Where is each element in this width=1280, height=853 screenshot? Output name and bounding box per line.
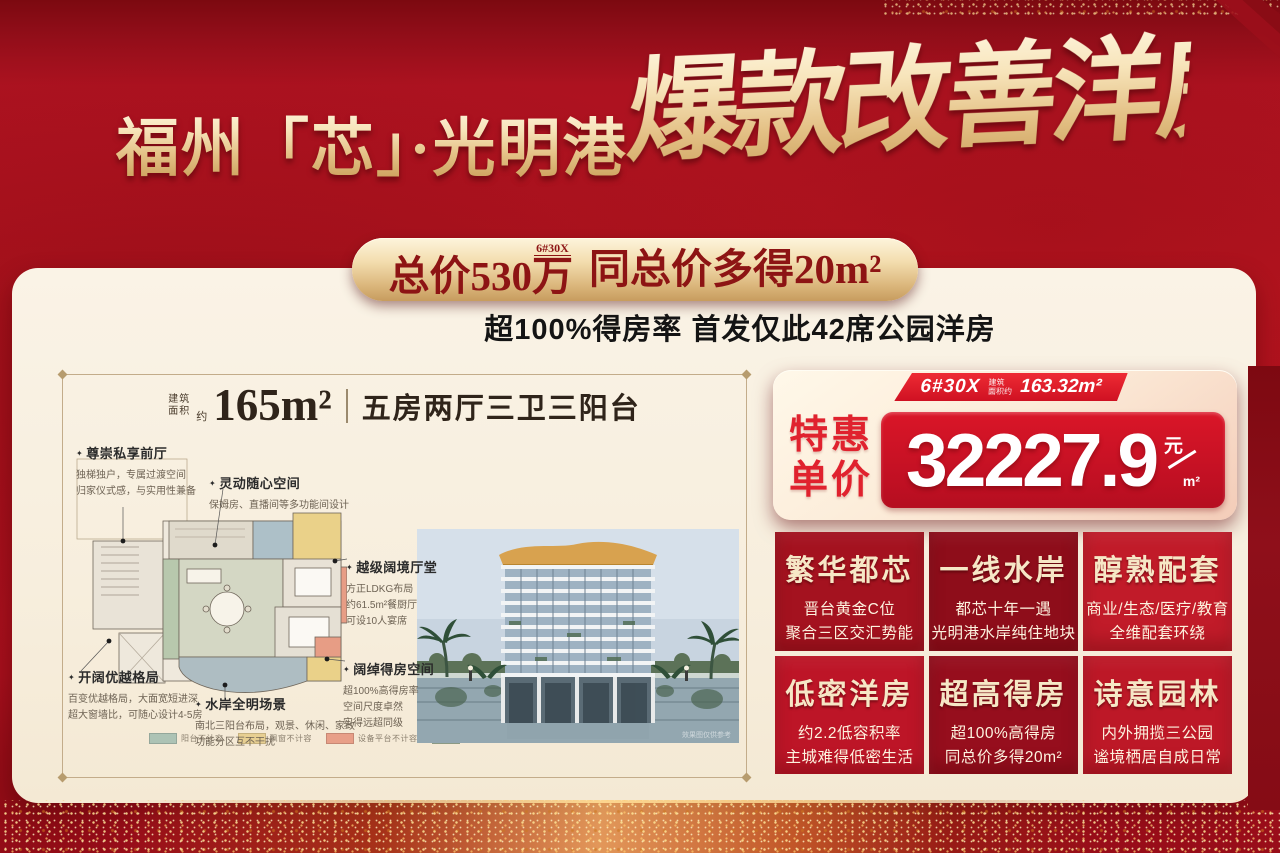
unit-number: 6#30X bbox=[920, 376, 981, 398]
annotation-spacious-area: 阔绰得房空间 超100%高得房率 空间尺度卓然 实得远超同级 bbox=[343, 659, 434, 732]
annotation-flex-space: 灵动随心空间 保姆房、直播间等多功能间设计 bbox=[209, 473, 349, 514]
badge-wan-char: 万 bbox=[532, 256, 573, 297]
photo-watermark: 效果图仅供参考 bbox=[682, 730, 731, 739]
area-value: 165m² bbox=[213, 383, 331, 428]
badge-price-part: 总价5306#30X万 bbox=[389, 242, 574, 297]
floorplan-header: 建筑面积 约 165m² 五房两厅三卫三阳台 bbox=[63, 383, 746, 428]
subtitle: 超100%得房率 首发仅此42席公园洋房 bbox=[420, 306, 1060, 348]
selling-point-card: 超高得房 超100%高得房同总价多得20m² bbox=[929, 656, 1078, 775]
area-label: 建筑面积 bbox=[168, 394, 190, 417]
selling-point-card: 一线水岸 都芯十年一遇光明港水岸纯住地块 bbox=[929, 532, 1078, 651]
slogan-calligraphy: 爆款改善洋房 bbox=[621, 3, 1194, 202]
badge-wan-group: 6#30X万 bbox=[532, 242, 573, 297]
building-photo: 效果图仅供参考 bbox=[417, 529, 739, 743]
badge-bonus-text: 同总价多得20m² bbox=[589, 249, 881, 290]
selling-point-card: 低密洋房 约2.2低容积率主城难得低密生活 bbox=[775, 656, 924, 775]
selling-points-grid: 繁华都芯 晋台黄金C位聚合三区交汇势能 一线水岸 都芯十年一遇光明港水岸纯住地块… bbox=[775, 532, 1232, 774]
unit-price-box: 32227.9 元 m² bbox=[881, 412, 1225, 508]
price-unit: 元 m² bbox=[1164, 431, 1200, 489]
selling-point-card: 醇熟配套 商业/生态/医疗/教育全维配套环绕 bbox=[1083, 532, 1232, 651]
annotation-waterfront-view: 水岸全明场景 南北三阳台布局，观景、休闲、家政 功能分区互不干扰 bbox=[195, 694, 355, 751]
total-price-badge: 总价5306#30X万 同总价多得20m² bbox=[352, 238, 918, 301]
footer-glitter-band bbox=[0, 800, 1280, 853]
area-approx-label: 约 bbox=[196, 408, 207, 424]
poster: 福州「芯」·光明港 爆款改善洋房 总价5306#30X万 同总价多得20m² 超… bbox=[0, 0, 1280, 853]
selling-point-card: 诗意园林 内外拥揽三公园谧境栖居自成日常 bbox=[1083, 656, 1232, 775]
ribbon-area-label: 建筑面积约 bbox=[988, 378, 1013, 396]
special-price-label: 特惠 单价 bbox=[789, 414, 873, 504]
price-card: 6#30X 建筑面积约 163.32m² 特惠 单价 32227.9 元 m² bbox=[773, 370, 1237, 520]
price-ribbon: 6#30X 建筑面积约 163.32m² bbox=[894, 373, 1127, 401]
legend-swatch bbox=[149, 733, 177, 744]
selling-point-card: 繁华都芯 晋台黄金C位聚合三区交汇势能 bbox=[775, 532, 924, 651]
ribbon-area-value: 163.32m² bbox=[1020, 376, 1102, 398]
location-title: 福州「芯」·光明港 bbox=[116, 98, 628, 189]
header-divider bbox=[346, 389, 348, 423]
unit-price-value: 32227.9 bbox=[906, 423, 1156, 498]
corner-ribbon-decoration bbox=[1190, 0, 1280, 100]
annotation-grand-hall: 越级阔境厅堂 方正LDKG布局 约61.5m²餐厨厅 可设10人宴席 bbox=[346, 557, 437, 630]
badge-price-text: 总价530 bbox=[389, 256, 533, 297]
gold-glitter bbox=[0, 800, 1280, 853]
floorplan-frame: 建筑面积 约 165m² 五房两厅三卫三阳台 bbox=[62, 374, 747, 778]
annotation-front-hall: 尊崇私享前厅 独梯独户，专属过渡空间 归家仪式感，与实用性兼备 bbox=[76, 443, 196, 500]
layout-name: 五房两厅三卫三阳台 bbox=[362, 385, 641, 427]
right-edge-band bbox=[1248, 366, 1280, 810]
annotation-open-layout: 开阔优越格局 百变优越格局，大面宽短进深 超大窗墙比，可随心设计4-5房 bbox=[68, 667, 202, 724]
